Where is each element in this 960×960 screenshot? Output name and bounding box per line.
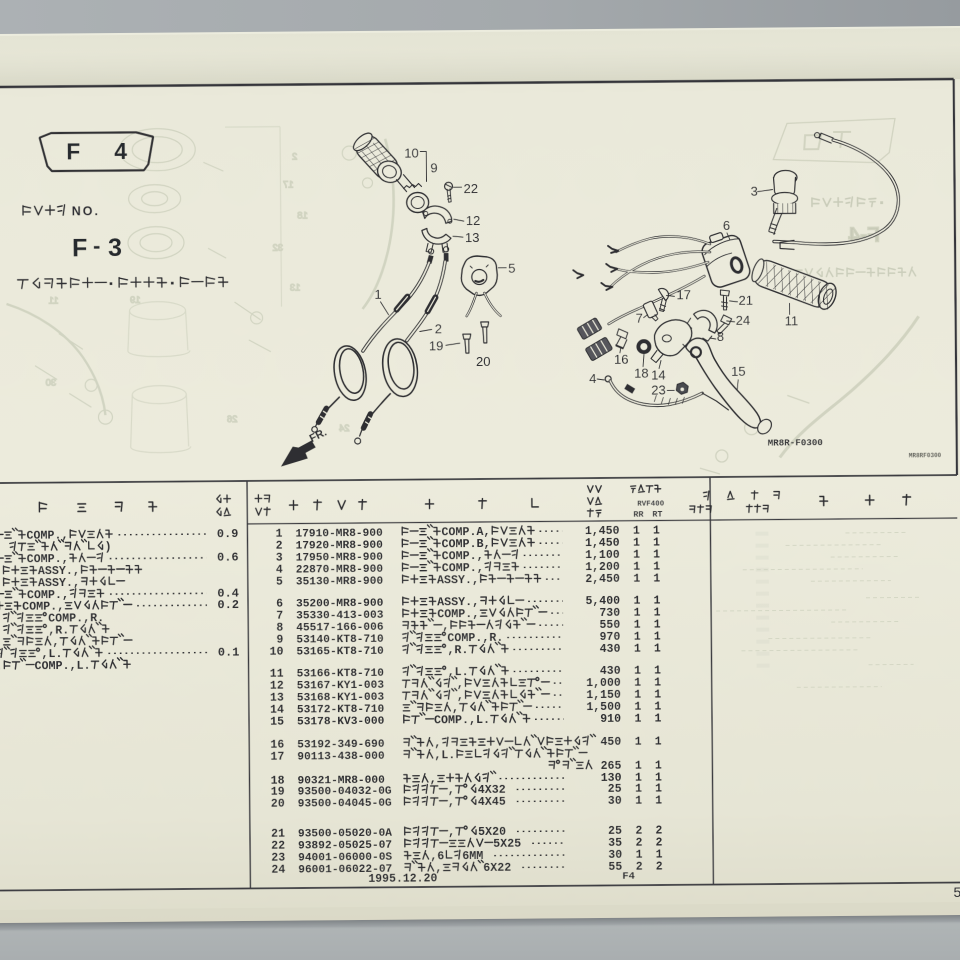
svg-text:1995.12.20: 1995.12.20 [368,872,437,886]
svg-text:7: 7 [636,311,643,326]
svg-text:32: 32 [272,243,283,254]
svg-text:1: 1 [635,795,642,808]
svg-text:1: 1 [655,735,662,748]
svg-text:10: 10 [270,646,284,659]
svg-text:93500-04045-0G: 93500-04045-0G [298,798,392,811]
svg-text:0.6: 0.6 [217,551,239,565]
svg-text:1: 1 [654,642,661,655]
svg-text:1: 1 [633,573,640,586]
svg-text:53168-KY1-003: 53168-KY1-003 [297,692,385,705]
svg-text:14: 14 [651,367,666,382]
svg-text:MR8R-F0300: MR8R-F0300 [768,437,823,448]
svg-text:910: 910 [600,713,621,726]
svg-text:2: 2 [636,861,643,874]
svg-text:45517-166-006: 45517-166-006 [296,622,384,635]
svg-text:16: 16 [614,352,629,367]
svg-text:93500-05020-0A: 93500-05020-0A [298,828,392,841]
svg-text:17950-MR8-900: 17950-MR8-900 [296,552,384,565]
svg-text:4: 4 [589,371,596,386]
svg-text:24: 24 [339,423,350,434]
svg-text:13: 13 [465,230,480,245]
svg-text:1: 1 [655,794,662,807]
svg-text:450: 450 [600,736,621,749]
svg-text:1: 1 [635,713,642,726]
svg-text:2: 2 [656,860,663,873]
svg-text:430: 430 [600,643,621,656]
svg-text:11: 11 [49,296,59,307]
svg-text:93500-04032-0G: 93500-04032-0G [298,786,392,799]
svg-text:F: F [66,138,80,164]
svg-text:RVF400: RVF400 [637,500,665,508]
svg-text:8: 8 [717,329,724,344]
svg-text:53178-KV3-000: 53178-KV3-000 [297,716,385,729]
svg-text:-: - [93,233,101,258]
svg-text:24: 24 [271,864,285,877]
svg-text:1: 1 [374,287,381,302]
svg-text:19: 19 [429,338,444,353]
svg-text:,: , [448,795,455,809]
svg-text:15: 15 [731,364,746,379]
svg-text:0.9: 0.9 [217,527,239,541]
svg-text:F: F [72,234,88,262]
svg-text:.: . [0,576,2,590]
svg-text:ASSY.,: ASSY., [437,573,479,587]
svg-text:17920-MR8-900: 17920-MR8-900 [296,540,384,553]
svg-text:17: 17 [676,287,691,302]
svg-text:18: 18 [634,366,649,381]
svg-text:.: . [0,636,2,650]
svg-text:24: 24 [736,313,751,328]
svg-text:12: 12 [466,213,481,228]
svg-text:): ) [104,540,111,554]
svg-text:1: 1 [655,712,662,725]
svg-text:13: 13 [290,282,301,293]
svg-text:2,450: 2,450 [585,573,620,586]
svg-text:35130-MR8-900: 35130-MR8-900 [296,576,384,589]
svg-text:RT: RT [652,509,662,519]
svg-text:(: ( [0,541,2,555]
svg-text:MR8RF0300: MR8RF0300 [909,452,942,459]
svg-text:53166-KT8-710: 53166-KT8-710 [297,668,385,681]
svg-text:5X25: 5X25 [493,837,521,851]
svg-text:1: 1 [653,572,660,585]
svg-text:RR: RR [633,510,644,520]
svg-text:19: 19 [130,295,141,306]
svg-text:94001-06000-0S: 94001-06000-0S [298,852,392,865]
svg-text:20: 20 [271,798,285,811]
svg-text:35200-MR8-900: 35200-MR8-900 [296,598,384,611]
svg-text:53172-KT8-710: 53172-KT8-710 [297,704,385,717]
svg-text:30: 30 [608,795,622,808]
svg-text:93892-05025-07: 93892-05025-07 [298,840,392,853]
svg-text:26: 26 [227,414,238,425]
svg-text:,: , [448,825,455,839]
svg-text:10: 10 [404,146,419,161]
svg-text:1: 1 [634,643,641,656]
svg-text:4X45: 4X45 [478,795,506,809]
svg-text:55: 55 [608,861,622,874]
svg-text:22: 22 [463,181,478,196]
svg-text:9: 9 [430,160,437,175]
svg-text:COMP.,L.: COMP.,L. [434,713,490,727]
svg-text:6: 6 [723,218,730,233]
svg-text:23: 23 [651,382,666,397]
svg-text:F4: F4 [622,871,635,883]
svg-text:20: 20 [476,354,491,369]
svg-text:,L.: ,L. [434,748,455,762]
svg-text:0.1: 0.1 [218,646,240,660]
svg-text:18: 18 [297,210,308,221]
svg-text:30: 30 [46,378,57,389]
svg-text:15: 15 [270,716,284,729]
svg-text:1: 1 [635,736,642,749]
svg-text:35330-413-003: 35330-413-003 [296,610,384,623]
svg-text:53140-KT8-710: 53140-KT8-710 [296,634,384,647]
svg-text:,R.: ,R. [447,643,468,657]
svg-text:17: 17 [283,180,294,191]
svg-text:2: 2 [435,321,442,336]
svg-text:NO.: NO. [72,204,100,218]
svg-text:17910-MR8-900: 17910-MR8-900 [295,528,383,541]
svg-text:5: 5 [953,884,960,900]
svg-text:53167-KY1-003: 53167-KY1-003 [297,680,385,693]
svg-text:COMP.,L.: COMP.,L. [34,659,90,673]
svg-text:3: 3 [108,234,122,262]
svg-text:3: 3 [751,184,758,199]
svg-text:21: 21 [738,293,753,308]
svg-text:4: 4 [114,138,127,164]
svg-text:,: , [430,772,437,786]
svg-text:17: 17 [270,751,284,764]
svg-text:5: 5 [276,576,283,589]
svg-text:0.2: 0.2 [217,598,239,612]
svg-text:2: 2 [292,152,297,163]
svg-text:53192-349-690: 53192-349-690 [297,739,385,752]
svg-text:11: 11 [785,313,799,328]
svg-text:22870-MR8-900: 22870-MR8-900 [296,564,384,577]
svg-text:90113-438-000: 90113-438-000 [297,751,385,764]
svg-text:5: 5 [508,261,515,276]
svg-text:.: . [0,659,3,673]
svg-text:6X22: 6X22 [483,861,511,875]
svg-text:6MM: 6MM [462,849,483,863]
svg-text:53165-KT8-710: 53165-KT8-710 [296,646,384,659]
